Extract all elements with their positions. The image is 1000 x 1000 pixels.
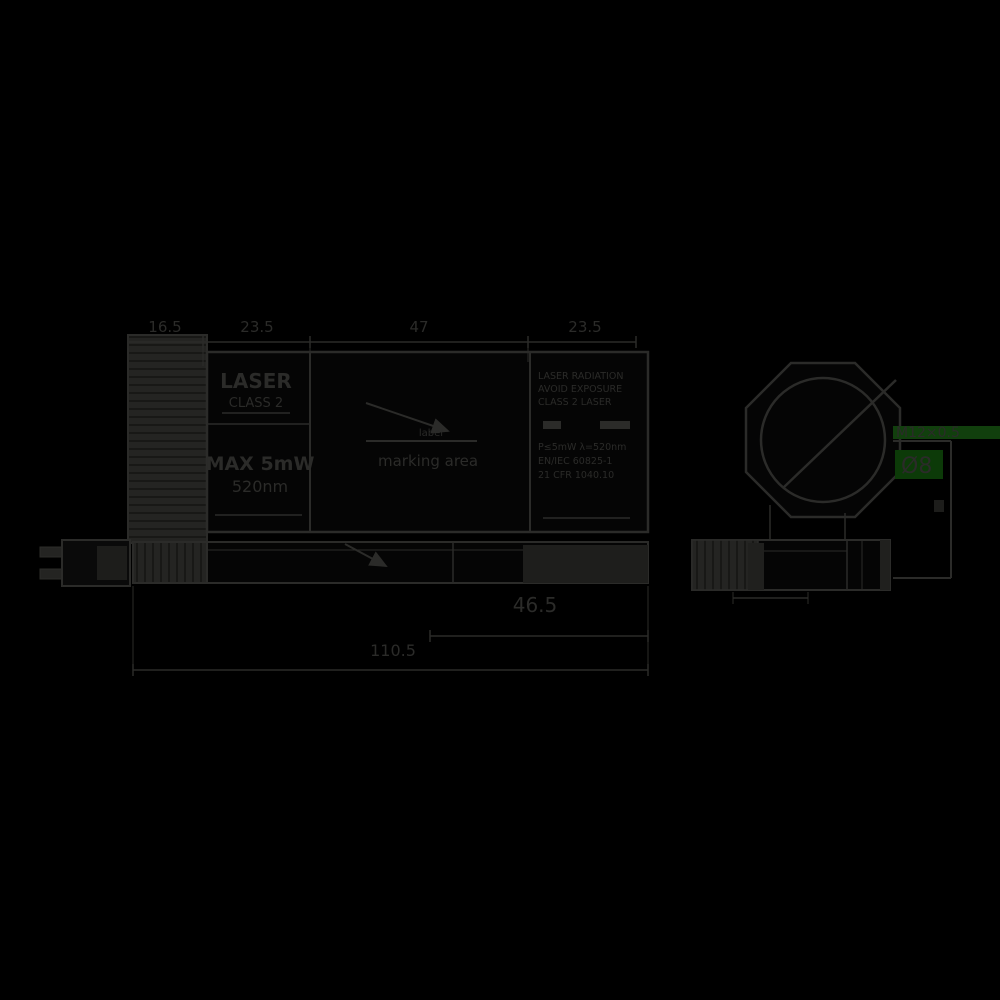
dim-label-segment-4: 23.5: [568, 318, 601, 336]
warning-row: 21 CFR 1040.10: [538, 470, 614, 481]
cylinder-end-cap: [880, 540, 890, 590]
connector-latch: [97, 546, 127, 580]
barrel-front-section: [523, 545, 648, 583]
technical-drawing: LASER CLASS 2 MAX 5mW 520nm LASER RADIAT…: [0, 0, 1000, 1000]
aperture-callout-text: Ø8: [901, 454, 932, 479]
label-dash-1: [543, 421, 561, 429]
dim-label-rear-section: 46.5: [513, 593, 558, 617]
tail-cap-knurl: [128, 335, 207, 543]
dim-label-overall: 110.5: [370, 641, 416, 660]
warning-row: AVOID EXPOSURE: [538, 384, 622, 395]
dim-label-segment-3: 47: [409, 318, 428, 336]
panel-text-3: MAX 5mW: [206, 453, 315, 475]
bracket-mid-mark: [934, 500, 944, 512]
bezel-octagon: [746, 363, 900, 517]
callout-top-text: label: [419, 428, 443, 439]
panel-text-1: LASER: [220, 369, 292, 393]
warning-row: LASER RADIATION: [538, 371, 623, 382]
panel-text-4: 520nm: [232, 477, 288, 496]
label-dash-2: [600, 421, 630, 429]
connector-prong-bottom: [40, 569, 62, 579]
callout-bottom-text: marking area: [378, 452, 478, 470]
top-view: LASER CLASS 2 MAX 5mW 520nm LASER RADIAT…: [128, 335, 648, 543]
cylinder-dark-band: [748, 543, 764, 590]
tail-cap-side: [133, 542, 207, 583]
panel-text-2: CLASS 2: [229, 396, 283, 411]
warning-row: P≤5mW λ=520nm: [538, 442, 626, 453]
dim-label-segment-1: 16.5: [148, 318, 181, 336]
thread-callout-text: M12×0.5: [896, 425, 960, 441]
connector-prong-top: [40, 547, 62, 557]
warning-row: CLASS 2 LASER: [538, 397, 612, 408]
dim-label-segment-2: 23.5: [240, 318, 273, 336]
warning-row: EN/IEC 60825-1: [538, 456, 612, 467]
